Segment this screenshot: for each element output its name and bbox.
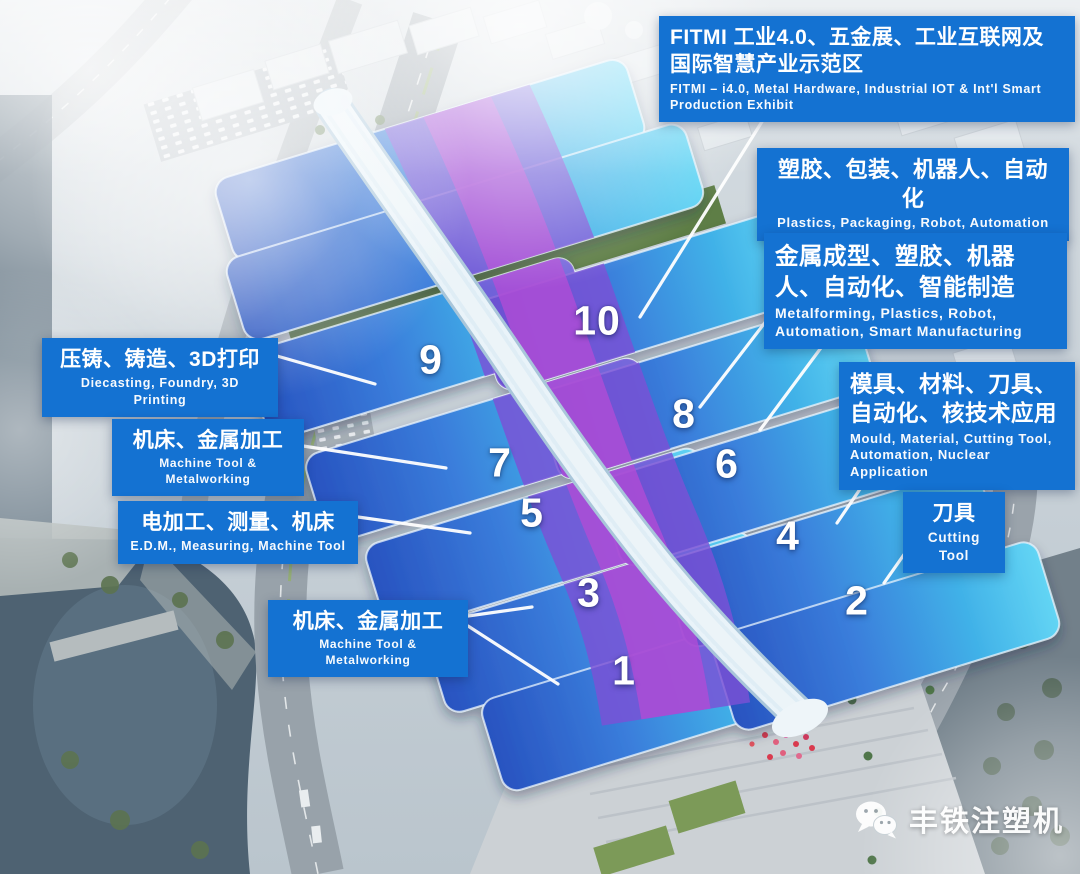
callout-cutting-en: Cutting Tool (914, 529, 994, 564)
callout-machine-tool-upper-en: Machine Tool & Metalworking (123, 456, 293, 487)
callout-mould-zh: 模具、材料、刀具、自动化、核技术应用 (850, 370, 1064, 429)
callout-machine-tool-lower-zh: 机床、金属加工 (279, 608, 457, 635)
callout-mould: 模具、材料、刀具、自动化、核技术应用 Mould, Material, Cutt… (839, 362, 1075, 490)
callout-edm-zh: 电加工、测量、机床 (129, 509, 347, 536)
callout-edm-en: E.D.M., Measuring, Machine Tool (129, 538, 347, 554)
callout-machine-tool-upper-zh: 机床、金属加工 (123, 427, 293, 454)
callout-diecasting-en: Diecasting, Foundry, 3D Printing (53, 375, 267, 408)
hall-number-2: 2 (845, 578, 869, 625)
hall-number-4: 4 (776, 513, 800, 560)
callout-plastics: 塑胶、包装、机器人、自动化 Plastics, Packaging, Robot… (757, 148, 1069, 241)
hall-number-3: 3 (577, 570, 601, 617)
hall-number-1: 1 (612, 648, 636, 695)
hall-number-7: 7 (488, 440, 512, 487)
callout-metalforming-zh: 金属成型、塑胶、机器人、自动化、智能制造 (775, 241, 1056, 302)
hall-number-8: 8 (672, 391, 696, 438)
callout-machine-tool-lower: 机床、金属加工 Machine Tool & Metalworking (268, 600, 468, 677)
callout-diecasting-zh: 压铸、铸造、3D打印 (53, 346, 267, 373)
callout-cutting: 刀具 Cutting Tool (903, 492, 1005, 573)
callout-fitmi-zh: FITMI 工业4.0、五金展、工业互联网及国际智慧产业示范区 (670, 24, 1064, 79)
exhibition-map: FITMI 工业4.0、五金展、工业互联网及国际智慧产业示范区 FITMI – … (0, 0, 1080, 874)
callout-metalforming-en: Metalforming, Plastics, Robot, Automatio… (775, 304, 1056, 340)
hall-number-6: 6 (715, 441, 739, 488)
wechat-icon (852, 798, 900, 840)
callout-mould-en: Mould, Material, Cutting Tool, Automatio… (850, 431, 1064, 482)
watermark: 丰铁注塑机 (852, 798, 1064, 840)
watermark-text: 丰铁注塑机 (909, 798, 1064, 840)
callout-diecasting: 压铸、铸造、3D打印 Diecasting, Foundry, 3D Print… (42, 338, 278, 417)
callout-plastics-en: Plastics, Packaging, Robot, Automation (768, 215, 1058, 232)
callout-edm: 电加工、测量、机床 E.D.M., Measuring, Machine Too… (118, 501, 358, 564)
callout-cutting-zh: 刀具 (914, 500, 994, 527)
callout-plastics-zh: 塑胶、包装、机器人、自动化 (768, 156, 1058, 213)
hall-number-9: 9 (419, 337, 443, 384)
callout-machine-tool-upper: 机床、金属加工 Machine Tool & Metalworking (112, 419, 304, 496)
callout-metalforming: 金属成型、塑胶、机器人、自动化、智能制造 Metalforming, Plast… (764, 233, 1067, 349)
hall-number-10: 10 (573, 298, 621, 345)
callout-fitmi-en: FITMI – i4.0, Metal Hardware, Industrial… (670, 81, 1064, 114)
callout-fitmi: FITMI 工业4.0、五金展、工业互联网及国际智慧产业示范区 FITMI – … (659, 16, 1075, 122)
hall-number-5: 5 (520, 490, 544, 537)
callout-machine-tool-lower-en: Machine Tool & Metalworking (279, 637, 457, 668)
